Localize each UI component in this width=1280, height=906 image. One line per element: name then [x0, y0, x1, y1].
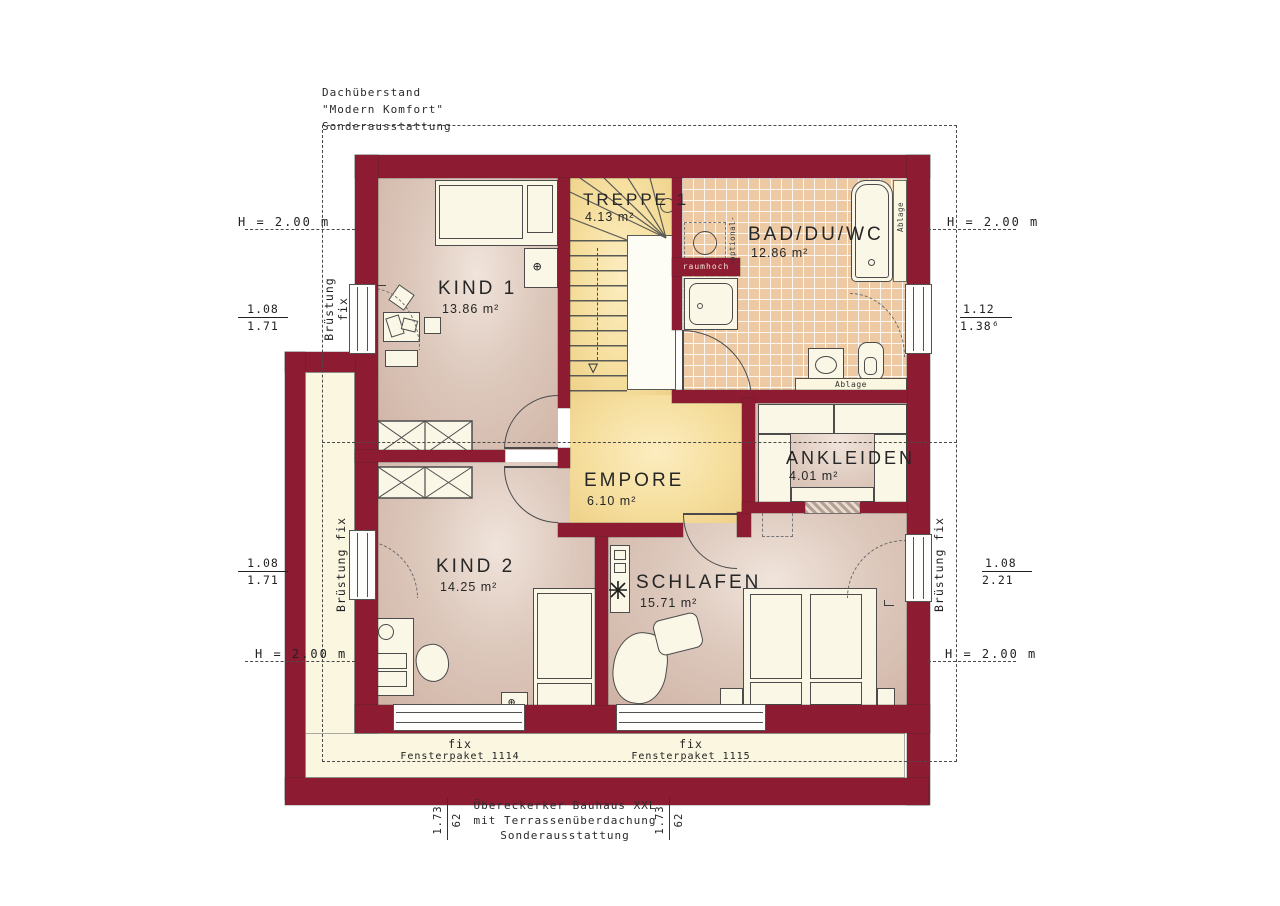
bottom-dim-left: 1.73 62 [430, 798, 466, 842]
roof-note-line1: Dachüberstand [322, 84, 452, 101]
dim-den: 1.71 [238, 572, 288, 587]
height-ref-line-top-right [928, 229, 1016, 230]
parapet-label-right-bottom: Brüstung fix [932, 520, 946, 612]
floor-plan: raumhoch ▽ Ablage -optional- Ablage [0, 0, 1280, 906]
dim-num: 1.08 [238, 302, 288, 318]
window1-paket-label: Fensterpaket 1114 [385, 751, 535, 762]
dim-divider [669, 798, 670, 840]
height-label-bottom-left: H = 2.00 m [255, 647, 347, 661]
window1-type-label: fix [395, 737, 525, 751]
dim-a: 1.73 [432, 800, 444, 840]
room-area-ankleiden: 4.01 m² [789, 469, 838, 483]
room-area-bad: 12.86 m² [751, 246, 808, 260]
height-ref-line-bottom-left [245, 661, 355, 662]
roof-note-line2: "Modern Komfort" [322, 101, 452, 118]
section-line [322, 442, 957, 443]
height-label-top-left: H = 2.00 m [238, 215, 330, 229]
dim-b: 62 [673, 800, 685, 840]
dim-den: 1.38⁶ [960, 318, 1012, 333]
dim-num: 1.12 [960, 302, 1012, 318]
window-dim-left-top: 1.08 1.71 [238, 302, 288, 333]
dim-den: 2.21 [982, 572, 1032, 587]
erker-note-line3: Sonderausstattung [470, 828, 660, 843]
height-ref-line-bottom-right [928, 661, 1016, 662]
room-area-kind1: 13.86 m² [442, 302, 499, 316]
room-area-schlafen: 15.71 m² [640, 596, 697, 610]
room-label-empore: EMPORE [584, 470, 684, 492]
room-label-treppe: TREPPE 1 [583, 190, 689, 210]
room-area-kind2: 14.25 m² [440, 580, 497, 594]
parapet-label-left-top: Brüstung fix [322, 263, 350, 355]
room-label-kind2: KIND 2 [436, 556, 515, 578]
room-area-treppe: 4.13 m² [585, 210, 634, 224]
dim-b: 62 [451, 800, 463, 840]
ablage-bottom-label: Ablage [795, 380, 907, 389]
roof-overhang-note: Dachüberstand "Modern Komfort" Sonderaus… [322, 84, 452, 135]
window2-paket-label: Fensterpaket 1115 [606, 751, 776, 762]
height-label-bottom-right: H = 2.00 m [945, 647, 1037, 661]
dim-num: 1.08 [238, 556, 288, 572]
parapet-fix: fix [336, 263, 350, 355]
height-label-top-right: H = 2.00 m [947, 215, 1039, 229]
terrace-wall-left [285, 352, 305, 800]
dachueberstand-outline [322, 125, 957, 762]
erker-note-line2: mit Terrassenüberdachung [470, 813, 660, 828]
roof-note-line3: Sonderausstattung [322, 118, 452, 135]
bottom-dim-right: 1.73 62 [652, 798, 688, 842]
dim-a: 1.73 [654, 800, 666, 840]
height-ref-line-top-left [245, 229, 355, 230]
window-dim-right-top: 1.12 1.38⁶ [960, 302, 1012, 333]
dim-num: 1.08 [982, 556, 1032, 572]
dim-divider [447, 798, 448, 840]
window-dim-right-bottom: 1.08 2.21 [982, 556, 1032, 587]
room-label-bad: BAD/DU/WC [748, 224, 884, 246]
dim-den: 1.71 [238, 318, 288, 333]
parapet-word: Brüstung [322, 263, 336, 355]
ablage-side-label: Ablage [896, 182, 905, 252]
erker-note-line1: Übereckerker Bauhaus XXL [470, 798, 660, 813]
window2-type-label: fix [616, 737, 766, 751]
parapet-label-left-bottom: Brüstung fix [334, 520, 348, 612]
room-label-kind1: KIND 1 [438, 278, 517, 300]
room-label-schlafen: SCHLAFEN [636, 572, 761, 594]
erker-note: Übereckerker Bauhaus XXL mit Terrassenüb… [470, 798, 660, 843]
optional-label: -optional- [728, 222, 737, 266]
room-area-empore: 6.10 m² [587, 494, 636, 508]
window-dim-left-bottom: 1.08 1.71 [238, 556, 288, 587]
room-label-ankleiden: ANKLEIDEN [786, 448, 915, 469]
